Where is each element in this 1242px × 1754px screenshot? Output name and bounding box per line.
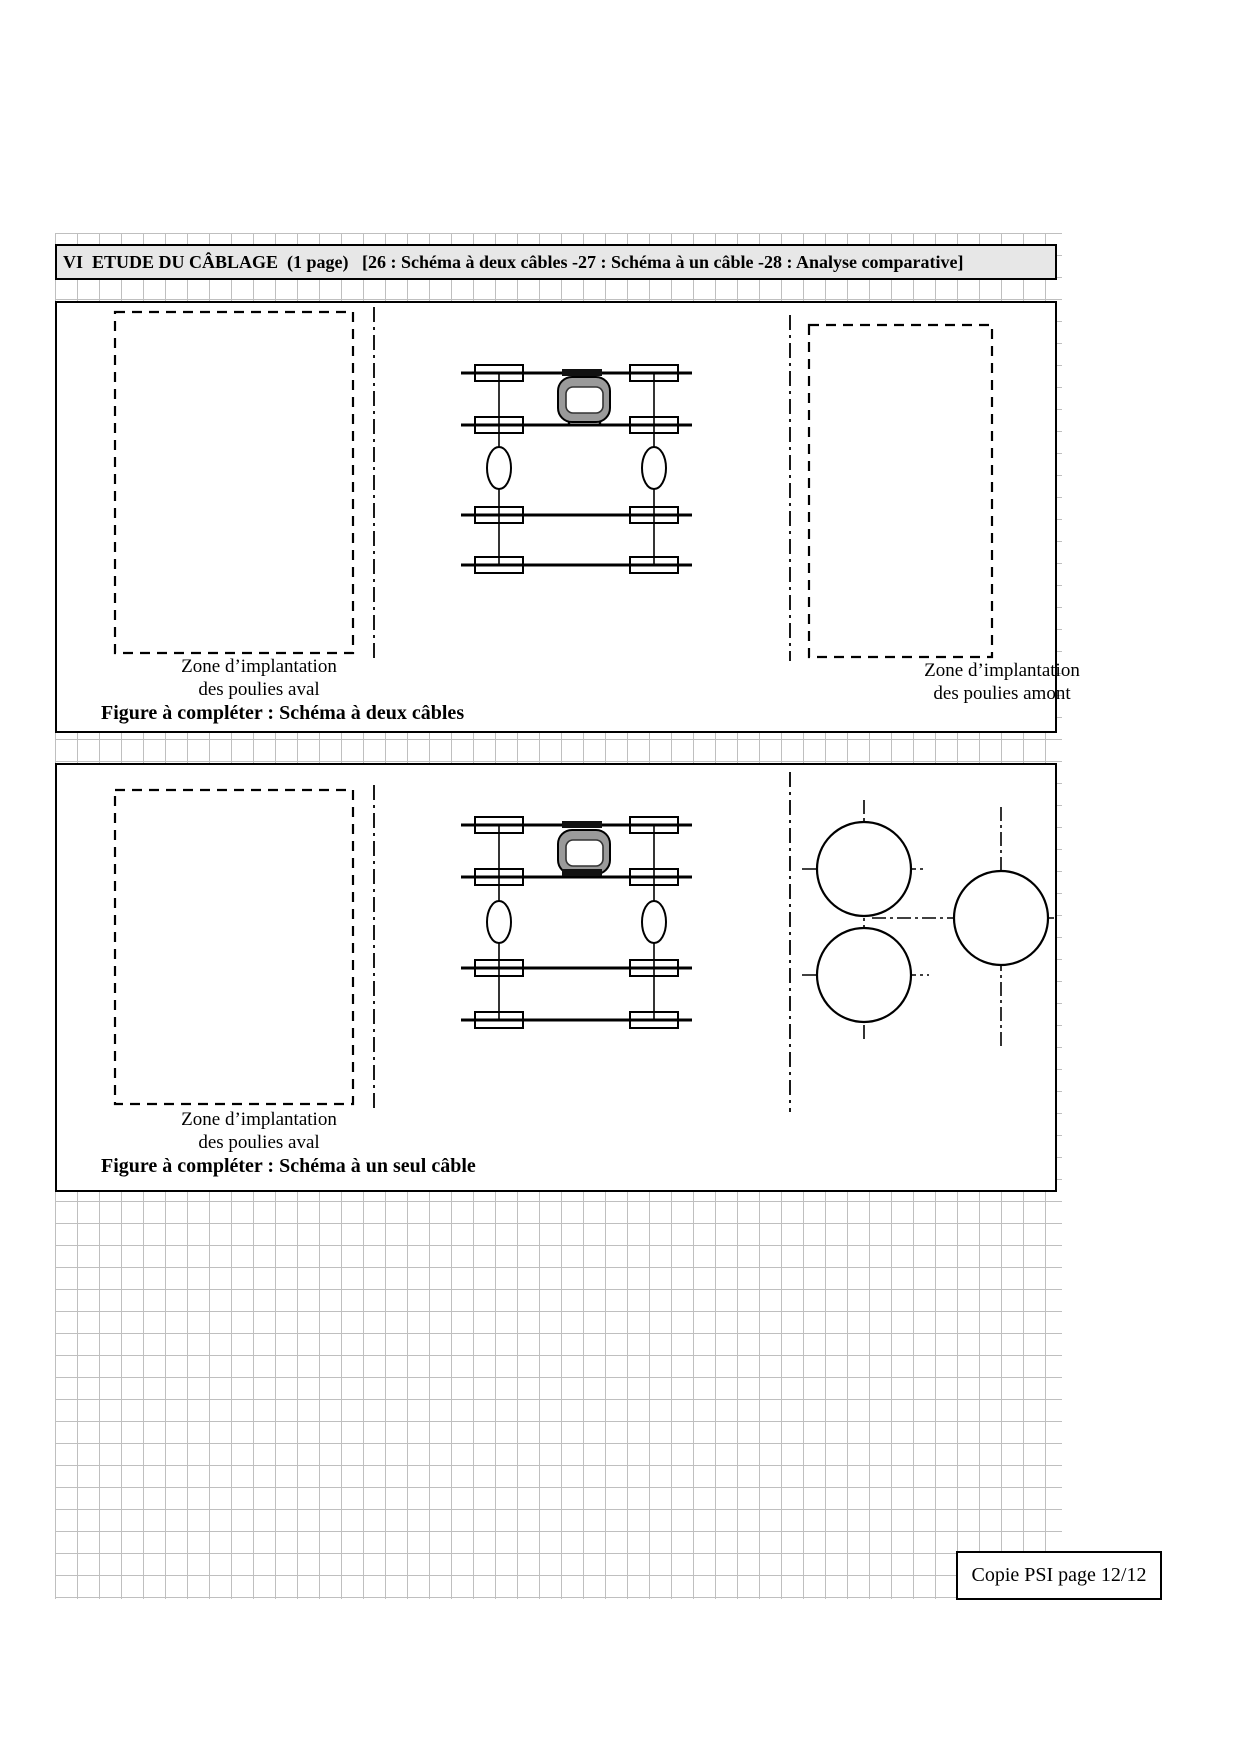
page-number-text: Copie PSI page 12/12: [972, 1564, 1147, 1587]
zone-amont-label: Zone d’implantation des poulies amont: [892, 659, 1112, 705]
figure-two-cables-box: Zone d’implantation des poulies aval Zon…: [55, 301, 1057, 733]
figure2-caption: Figure à compléter : Schéma à un seul câ…: [101, 1155, 476, 1178]
carriage-schematic: [461, 365, 692, 573]
figure1-caption: Figure à compléter : Schéma à deux câble…: [101, 702, 464, 725]
motor-block: [558, 821, 610, 876]
suspension-ellipse-right: [642, 901, 666, 943]
suspension-ellipse-left: [487, 447, 511, 489]
exam-document-page: VI ETUDE DU CÂBLAGE (1 page) [26 : Schém…: [0, 0, 1242, 1754]
pulley-circles: [802, 800, 1054, 1050]
zone-aval-dashed-rect: [115, 790, 353, 1104]
section-title-text: VI ETUDE DU CÂBLAGE (1 page) [26 : Schém…: [63, 252, 963, 273]
suspension-ellipse-right: [642, 447, 666, 489]
pulley-circle-right: [954, 871, 1048, 965]
suspension-ellipse-left: [487, 901, 511, 943]
zone-aval-label: Zone d’implantation des poulies aval: [149, 655, 369, 701]
pulley-circle-top: [817, 822, 911, 916]
zone-aval-dashed-rect: [115, 312, 353, 653]
motor-block: [558, 369, 610, 426]
zone-amont-dashed-rect: [809, 325, 992, 657]
page-number-box: Copie PSI page 12/12: [956, 1551, 1162, 1600]
figure-single-cable-box: Zone d’implantation des poulies aval Fig…: [55, 763, 1057, 1192]
pulley-circle-bottom: [817, 928, 911, 1022]
section-title-bar: VI ETUDE DU CÂBLAGE (1 page) [26 : Schém…: [55, 244, 1057, 280]
zone-aval-label: Zone d’implantation des poulies aval: [149, 1108, 369, 1154]
carriage-schematic: [461, 817, 692, 1028]
